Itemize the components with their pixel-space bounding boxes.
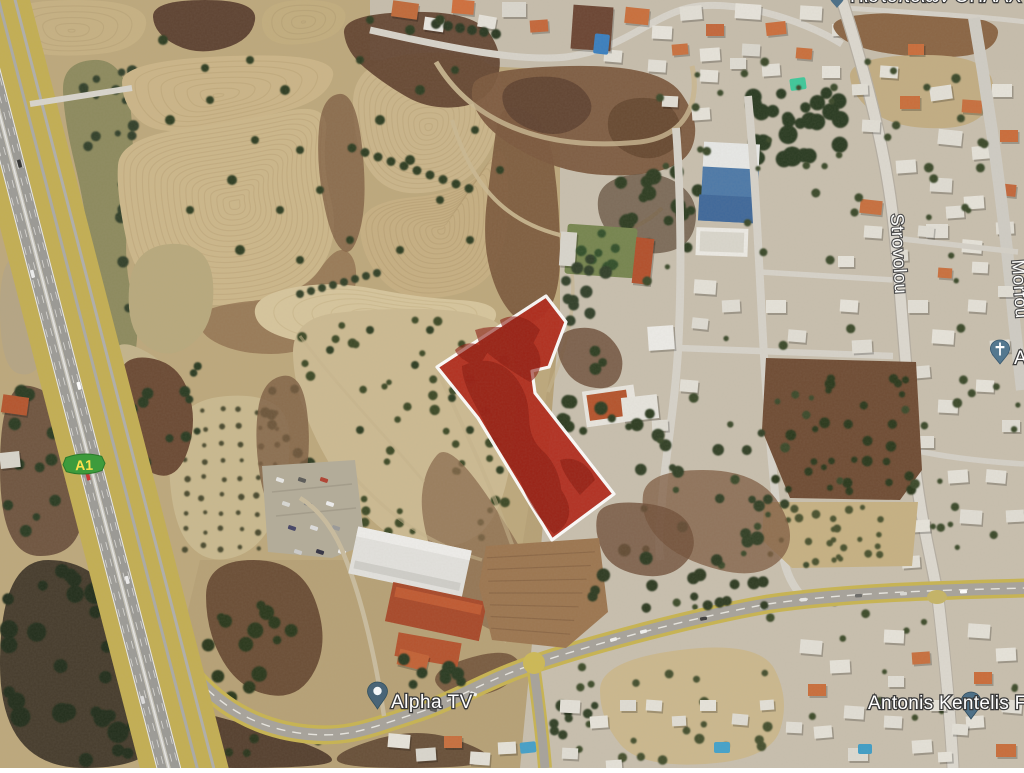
svg-text:Antonis Kentelis F: Antonis Kentelis F [868, 693, 1024, 714]
svg-text:Πιστοποιών ΟΠΛΑΧ μ: Πιστοποιών ΟΠΛΑΧ μ [850, 0, 1024, 7]
svg-text:Strovolou: Strovolou [887, 213, 911, 294]
svg-text:Alpha TV: Alpha TV [391, 692, 473, 713]
svg-text:Α: Α [1014, 348, 1024, 369]
svg-text:A1: A1 [75, 457, 94, 474]
